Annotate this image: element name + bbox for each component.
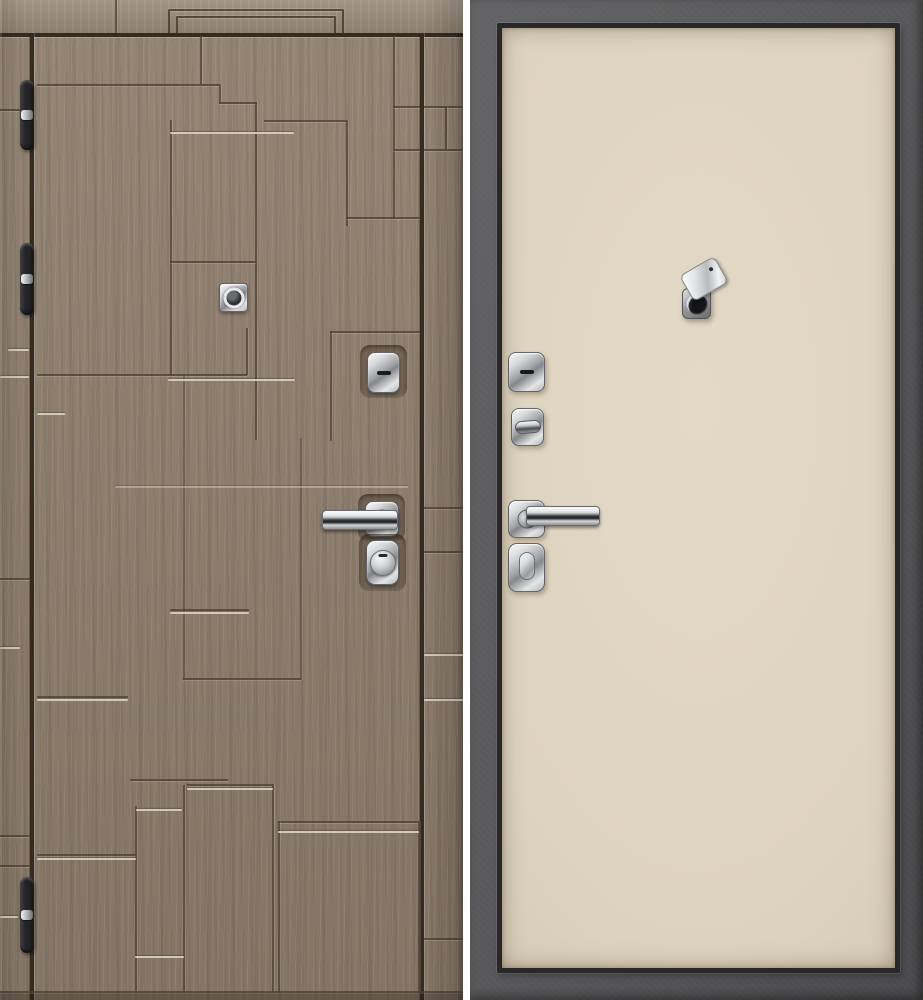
silver-accent-line bbox=[424, 654, 463, 656]
groove-line bbox=[200, 36, 202, 84]
groove-line bbox=[170, 120, 172, 376]
groove-line bbox=[219, 84, 221, 104]
door-edge-shadow bbox=[455, 33, 463, 1000]
groove-line bbox=[170, 609, 249, 611]
groove-line bbox=[424, 551, 463, 553]
silver-accent-line bbox=[278, 831, 419, 833]
silver-accent-line bbox=[424, 699, 463, 701]
groove-line bbox=[418, 821, 420, 993]
groove-line bbox=[393, 36, 395, 218]
groove-line bbox=[246, 328, 248, 375]
lever-handle-interior bbox=[526, 506, 600, 526]
door-leaf-left-gap bbox=[30, 33, 34, 1000]
door-leaf-outline bbox=[497, 23, 900, 973]
silver-accent-line bbox=[8, 349, 29, 351]
keyhole-slot bbox=[520, 370, 534, 374]
groove-line bbox=[424, 507, 463, 509]
groove-line bbox=[424, 149, 463, 151]
silver-accent-line bbox=[170, 132, 294, 134]
groove-line bbox=[424, 938, 463, 940]
groove-line bbox=[135, 806, 137, 993]
groove-line bbox=[278, 821, 280, 993]
door-edge-highlight bbox=[0, 0, 2, 1000]
cream-door-leaf bbox=[502, 28, 895, 968]
groove-line bbox=[37, 84, 219, 86]
groove-line bbox=[424, 106, 463, 108]
silver-accent-line bbox=[136, 809, 182, 811]
thumbturn-escutcheon bbox=[511, 408, 544, 446]
hinge-top bbox=[20, 80, 34, 150]
silver-accent-line bbox=[37, 858, 136, 860]
groove-line bbox=[183, 678, 301, 680]
silver-accent-line bbox=[37, 413, 65, 415]
groove-line bbox=[37, 696, 128, 698]
groove-line bbox=[0, 865, 30, 867]
groove-line bbox=[255, 102, 257, 440]
groove-line bbox=[0, 835, 30, 837]
silver-accent-line bbox=[187, 788, 273, 790]
oval-thumbturn bbox=[519, 552, 535, 580]
keyhole-slot bbox=[377, 371, 391, 375]
lever-handle-exterior bbox=[322, 510, 398, 530]
hinge-bottom bbox=[20, 877, 34, 953]
groove-line bbox=[393, 149, 420, 151]
silver-accent-line bbox=[135, 956, 184, 958]
groove-line bbox=[183, 785, 185, 993]
groove-line bbox=[187, 784, 273, 786]
groove-line bbox=[37, 374, 247, 376]
keyhole-round-cover bbox=[370, 550, 396, 576]
silver-accent-line bbox=[37, 699, 128, 701]
silver-accent-line bbox=[0, 376, 29, 378]
groove-line bbox=[300, 438, 302, 680]
groove-line bbox=[346, 217, 420, 219]
silver-accent-line bbox=[0, 916, 18, 918]
keyhole-escutcheon bbox=[367, 352, 400, 393]
groove-line bbox=[115, 0, 117, 34]
groove-line bbox=[393, 106, 420, 108]
exterior-door-panel bbox=[0, 0, 463, 1000]
round-lock-escutcheon bbox=[366, 540, 399, 585]
product-photo-two-door-panels bbox=[0, 0, 923, 1000]
groove-line bbox=[272, 784, 274, 993]
silver-accent-line bbox=[170, 612, 249, 614]
groove-line bbox=[183, 374, 185, 680]
silver-accent-line bbox=[168, 379, 295, 381]
groove-line bbox=[346, 120, 348, 226]
groove-line bbox=[330, 331, 420, 333]
cylinder-lock-plate bbox=[219, 283, 248, 312]
groove-line bbox=[170, 261, 256, 263]
silver-accent-line bbox=[115, 486, 408, 488]
thumbturn-wing bbox=[514, 420, 541, 435]
groove-line bbox=[445, 106, 447, 150]
groove-line bbox=[37, 854, 136, 856]
oval-thumbturn-escutcheon bbox=[508, 543, 545, 592]
groove-line bbox=[0, 578, 30, 580]
interior-door-panel bbox=[470, 0, 923, 1000]
lock-cylinder-face bbox=[223, 287, 244, 308]
groove-line bbox=[219, 102, 257, 104]
peephole-cover-screw bbox=[708, 266, 713, 271]
silver-accent-line bbox=[0, 647, 20, 649]
groove-line bbox=[330, 331, 332, 441]
door-bottom-shadow bbox=[0, 993, 463, 1000]
top-rail-step-groove bbox=[176, 16, 336, 34]
groove-line bbox=[264, 120, 346, 122]
groove-line bbox=[278, 821, 419, 823]
keyhole-escutcheon-interior bbox=[508, 352, 545, 392]
groove-line bbox=[130, 779, 228, 781]
door-leaf-right-gap bbox=[420, 33, 424, 1000]
hinge-middle bbox=[20, 243, 34, 315]
